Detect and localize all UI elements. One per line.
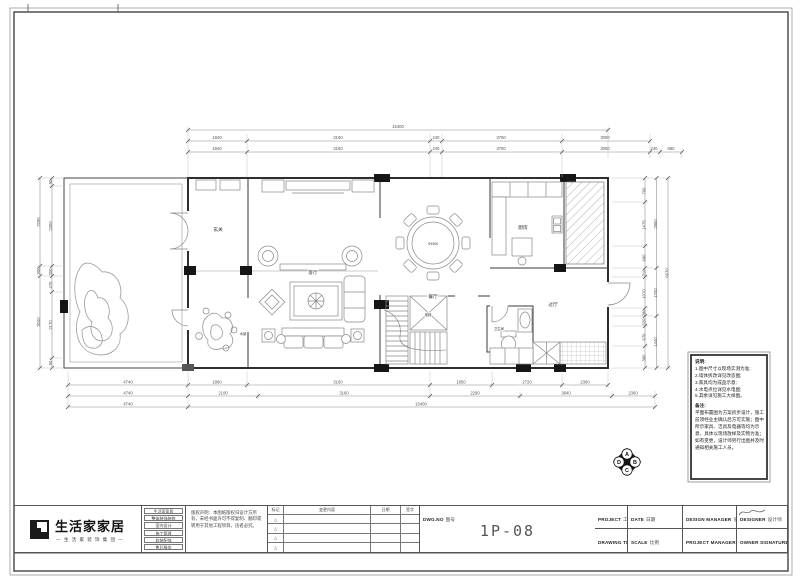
revision-mark: △ [268,515,284,524]
revision-header: 变更内容 [284,506,371,515]
marker-b: B [633,460,637,466]
svg-text:3160: 3160 [333,146,343,151]
drawing-sheet: 玄关 客厅 餐厅 Φ1500 厨房 过厅 卫生间 电梯 水景 15400 184… [0,0,800,584]
svg-text:670: 670 [642,333,647,341]
svg-text:320: 320 [642,318,647,326]
project-manager-field: PROJECT MANAGER项目经理 [683,529,737,552]
svg-text:2960: 2960 [653,219,658,229]
date-field: DATE日期 [628,506,683,529]
design-notes-panel: 说明: 1.图中尺寸以现场实测为准; 2.墙体拆改详见改造图; 3.家具均为成品… [695,359,764,476]
label-dining: 餐厅 [428,293,438,300]
owner-signature-field: OWNER SIGNATURE业主签字 [737,529,788,552]
designer-field: DESIGNER设计师 [737,506,788,529]
company-info-row: 生活家家居 [144,508,183,514]
company-info-row: 施工管理 [144,530,183,536]
revision-mark: △ [268,534,284,543]
entry-french-door [170,180,240,251]
company-info-row: 整体装饰装修 [144,515,183,521]
svg-text:3160: 3160 [333,380,343,385]
svg-text:2720: 2720 [522,380,532,385]
svg-text:3040: 3040 [36,317,41,327]
svg-text:1850: 1850 [456,380,466,385]
label-kitchen: 厨房 [518,224,528,231]
dimensions-right: 700 1475 690 310 1070 280 320 670 380 29… [612,176,671,370]
outer-border [10,8,792,575]
svg-text:1700: 1700 [653,288,658,298]
svg-text:2300: 2300 [48,221,53,231]
svg-text:280: 280 [642,309,647,317]
marker-d: D [617,460,621,466]
revision-header: 标记 [268,506,284,515]
company-info-row: 室内设计 [144,522,183,528]
project-field: PROJECT工程名称 [595,506,628,529]
svg-text:90: 90 [48,360,53,365]
company-info-row: 售后服务 [144,544,183,550]
svg-text:300: 300 [36,267,41,275]
svg-text:3840: 3840 [561,391,571,396]
svg-text:1860: 1860 [212,380,222,385]
svg-text:240: 240 [433,135,441,140]
designer-signature [737,506,767,518]
svg-text:690: 690 [642,254,647,262]
dimensions-left: 2290 300 3040 90 2300 300 470 2170 90 [36,176,64,370]
svg-text:1475: 1475 [642,220,647,230]
company-logo-block: 生活家家居 — 生 活 家 装 饰 集 团 — [14,506,142,552]
svg-text:700: 700 [642,187,647,195]
note-item: 1.图中尺寸以现场实测为准; [695,366,764,373]
svg-text:3160: 3160 [333,135,343,140]
label-landscape: 水景 [240,331,247,336]
hallway-exterior-door [605,282,630,307]
design-manager-field: DESIGN MANAGER设计总监 [683,506,737,529]
svg-text:2100: 2100 [218,391,228,396]
staircase [384,296,447,364]
svg-text:15400: 15400 [392,124,404,129]
svg-text:1840: 1840 [212,146,222,151]
note-item: 3.家具均为成品示意; [695,380,764,387]
remark-text: 平面布置图为方案初步设计，施工前须经业主确认后方可实施；图中所示家具、洁具及电器… [695,410,764,451]
svg-text:3700: 3700 [496,146,506,151]
drawing-title-field: DRAWING TITLE图纸名称 平面布置图 [595,529,628,552]
copyright-note: 版权声明：本图纸版权归设计方所有，未经书面许可不得复制、翻印或转用于其他工程项目… [186,506,268,552]
dimensions-top: 15400 1840 3160 240 3700 3000 1840 3160 … [186,124,684,177]
svg-text:240: 240 [651,146,659,151]
svg-text:660: 660 [668,146,676,151]
svg-text:6670: 6670 [665,268,670,278]
svg-text:1840: 1840 [212,135,222,140]
svg-text:90: 90 [48,179,53,184]
entry-water-feature [196,308,237,351]
scale-field: SCALE比例 [628,529,683,552]
elevation-index-marker: A B C D [613,448,641,476]
svg-text:2360: 2360 [580,380,590,385]
label-elevator: 电梯 [425,312,432,317]
notes-title: 说明: [695,359,764,366]
revision-mark: △ [268,543,284,552]
svg-text:470: 470 [48,281,53,289]
company-info-row: 软装配饰 [144,537,183,543]
svg-text:3000: 3000 [600,146,610,151]
kitchen-fixtures [492,182,562,265]
note-item: 5.其余详见施工大样图。 [695,393,764,400]
terrace-hatch [566,182,604,264]
drawing-number: 1P-08 [420,522,595,540]
revision-header: 签字 [401,506,419,515]
label-entry: 玄关 [213,226,223,233]
living-room-furniture [258,180,374,348]
svg-text:4740: 4740 [123,391,133,396]
garden-door [172,308,191,330]
floor-plan-drawing: 玄关 客厅 餐厅 Φ1500 厨房 过厅 卫生间 电梯 水景 15400 184… [0,0,800,584]
label-living: 客厅 [308,269,318,276]
company-logo-icon [30,520,49,539]
company-tagline: — 生 活 家 装 饰 集 团 — [56,537,124,543]
drawing-number-field: DWG.NO图号 1P-08 [420,506,595,552]
svg-text:310: 310 [642,269,647,277]
svg-text:1440: 1440 [653,337,658,347]
note-item: 2.墙体拆改详见改造图; [695,373,764,380]
svg-text:3000: 3000 [600,135,610,140]
label-table-dia: Φ1500 [428,242,438,246]
dimensions-bottom: 4740 1860 3160 1850 2720 2360 4740 2100 … [66,371,657,409]
svg-text:300: 300 [48,268,53,276]
svg-text:240: 240 [433,146,441,151]
svg-text:4740: 4740 [123,380,133,385]
svg-text:2360: 2360 [628,391,638,396]
garden-yard [64,178,188,368]
title-block: PROJECT工程名称 DATE日期 DESIGN MANAGER设计总监 DE… [420,506,788,552]
company-name: 生活家家居 [55,516,125,535]
marker-c: C [625,468,629,474]
company-info-table: 生活家家居 整体装饰装修 室内设计 施工管理 软装配饰 售后服务 [142,506,186,552]
svg-text:1070: 1070 [642,289,647,299]
label-hallway: 过厅 [548,301,558,308]
svg-text:3700: 3700 [496,135,506,140]
svg-text:380: 380 [642,354,647,362]
svg-text:2170: 2170 [48,320,53,330]
title-strip: 生活家家居 — 生 活 家 装 饰 集 团 — 生活家家居 整体装饰装修 室内设… [14,505,788,553]
svg-text:4740: 4740 [123,402,133,407]
revision-header: 日期 [371,506,401,515]
marker-a: A [625,452,629,458]
svg-text:15400: 15400 [415,402,427,407]
svg-text:2290: 2290 [470,391,480,396]
revision-mark: △ [268,524,284,533]
label-bathroom: 卫生间 [494,326,505,331]
partition-walls [190,178,608,368]
svg-text:2290: 2290 [36,217,41,227]
svg-text:3160: 3160 [339,391,349,396]
revision-table: 标记 变更内容 日期 签字 △ △ △ △ [268,506,420,552]
inner-border [14,12,788,571]
